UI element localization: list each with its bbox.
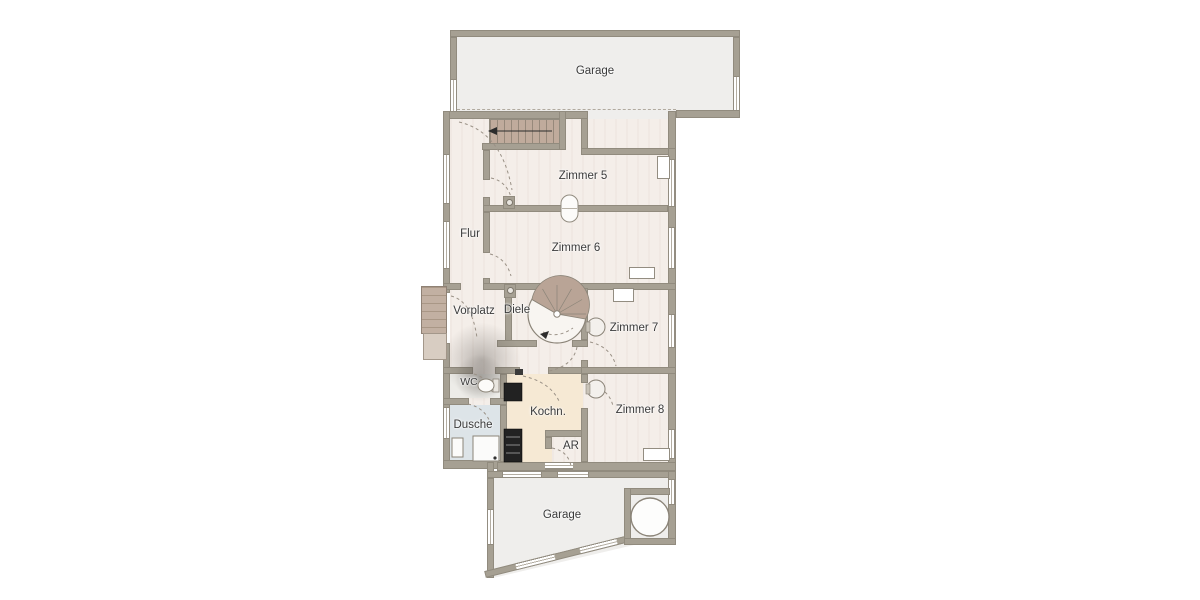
wall — [548, 367, 583, 374]
wall — [668, 268, 676, 315]
wall — [443, 203, 450, 222]
wall — [668, 206, 676, 228]
wall — [588, 471, 676, 478]
room-label-zimmer8: Zimmer 8 — [616, 404, 665, 416]
window — [443, 408, 450, 438]
room-label-diele: Diele — [504, 304, 530, 316]
door-pivot — [503, 196, 515, 209]
window — [545, 462, 573, 471]
wall — [668, 347, 676, 430]
floor-plan: Garage Zimmer 5 Flur Zimmer 6 Vorplatz D… — [0, 0, 1200, 600]
wall — [572, 340, 588, 347]
tank-enclosure-floor — [631, 495, 668, 538]
window — [503, 471, 541, 478]
room-label-zimmer5: Zimmer 5 — [559, 170, 608, 182]
window — [558, 471, 588, 478]
wall — [624, 488, 631, 545]
tree-shadow — [445, 345, 515, 411]
floor-shower — [450, 405, 500, 462]
window — [487, 510, 494, 544]
room-label-flur: Flur — [460, 228, 480, 240]
wall — [733, 37, 740, 77]
window — [443, 222, 450, 268]
radiator — [613, 288, 634, 302]
window — [450, 80, 457, 111]
wall — [483, 150, 490, 180]
room-label-zimmer6: Zimmer 6 — [552, 242, 601, 254]
wall — [581, 374, 588, 383]
room-label-vorplatz: Vorplatz — [453, 305, 495, 317]
wall — [450, 37, 457, 80]
radiator — [643, 448, 670, 461]
wall — [668, 471, 676, 480]
wall — [450, 30, 740, 37]
garage-door-line — [457, 109, 676, 110]
staircase — [489, 119, 561, 145]
wall — [443, 111, 588, 119]
room-label-garage-top: Garage — [576, 65, 614, 77]
wall — [545, 430, 583, 437]
window — [733, 77, 740, 110]
wall — [581, 367, 676, 374]
room-label-garage-bottom: Garage — [543, 509, 581, 521]
wall — [487, 478, 494, 510]
wall — [483, 212, 490, 253]
room-label-ar: AR — [563, 440, 579, 452]
wall — [676, 110, 740, 118]
radiator — [657, 156, 670, 179]
wall — [581, 288, 588, 340]
room-label-kochn: Kochn. — [530, 406, 566, 418]
wall — [443, 111, 450, 155]
window — [668, 315, 676, 347]
wall — [487, 471, 503, 478]
wall — [541, 471, 558, 478]
wall — [581, 408, 588, 462]
window — [443, 155, 450, 203]
window — [668, 228, 676, 268]
wall — [559, 111, 566, 150]
wall — [482, 143, 566, 150]
wall — [545, 437, 552, 449]
wall — [500, 405, 507, 462]
room-label-zimmer7: Zimmer 7 — [610, 322, 659, 334]
wall — [624, 538, 676, 545]
radiator — [629, 267, 655, 279]
room-label-dusche: Dusche — [454, 419, 493, 431]
wall — [581, 148, 676, 155]
room-label-wc: WC — [460, 376, 478, 388]
wall — [497, 462, 676, 471]
door-pivot — [504, 284, 516, 298]
